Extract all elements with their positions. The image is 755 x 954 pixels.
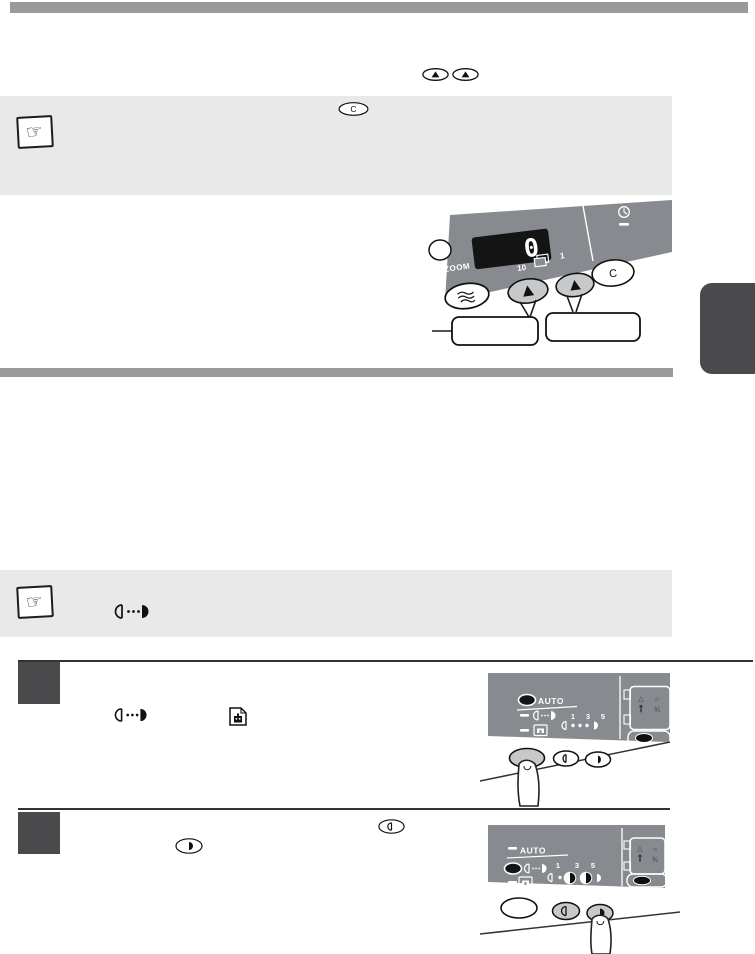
svg-text:3: 3 [575,861,579,870]
svg-text:¾: ¾ [652,857,658,864]
section-divider-bar [0,368,673,377]
tens-label: 10 [517,263,527,273]
note-box [0,570,672,637]
exposure-panel-step2: AUTO 1 3 5 [480,815,680,954]
auto-label: AUTO [520,846,546,856]
exposure-icon [114,707,148,723]
lighten-key [554,751,579,766]
manual-page: ☞ C 0 ZOOM 10 1 [0,0,755,954]
indicator-dash [520,714,529,717]
auto-indicator [519,695,536,706]
svg-text:△: △ [637,846,643,853]
indicator-dash [619,223,629,226]
svg-text:5: 5 [591,861,595,870]
manual-indicator [505,863,522,874]
step-rule [18,660,753,662]
svg-text:3: 3 [586,712,590,721]
up-key-icon [422,68,449,81]
photo-mode-icon [227,704,249,727]
section-text-area [18,385,668,565]
svg-text:C: C [350,104,356,114]
header-bar [10,2,748,13]
step-number-box [18,812,60,854]
step2-text-area [80,818,460,948]
indicator-dash [520,729,529,732]
note-box [0,96,672,195]
section-tab [700,283,755,374]
darken-key-icon [175,838,203,854]
note-hand-icon: ☞ [16,115,54,149]
svg-text:¾: ¾ [654,707,660,714]
indicator-dash [508,881,517,884]
up-key-icon [452,68,479,81]
auto-key [501,898,537,918]
note-hand-icon: ☞ [16,585,54,619]
lighten-key [553,903,580,920]
exposure-icon [114,603,150,620]
step-rule [18,808,670,810]
auto-label: AUTO [538,696,564,706]
paragraph-area [18,22,668,92]
svg-text:5: 5 [601,712,605,721]
callout-box-left [452,317,538,345]
lighten-key-icon [378,819,405,834]
darken-key [586,752,611,767]
partial-key [429,240,451,260]
svg-text:C: C [609,268,618,281]
svg-text:☼: ☼ [654,696,660,703]
step1-text-area [80,670,460,800]
svg-text:1: 1 [571,712,575,721]
callout-box-right [546,313,640,341]
pointing-finger [591,915,611,954]
exposure-panel-step1: AUTO 1 3 5 [480,665,680,810]
pointing-finger [518,760,539,806]
clear-key-icon: C [338,102,369,116]
svg-text:1: 1 [556,861,560,870]
svg-text:△: △ [638,696,644,703]
indicator-dash [508,847,517,850]
svg-text:☼: ☼ [652,846,658,853]
step-number-box [18,662,60,704]
